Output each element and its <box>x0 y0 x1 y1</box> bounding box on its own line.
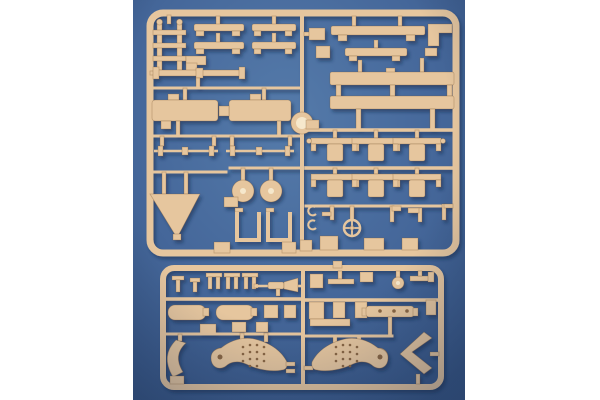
screenshot-stage <box>0 0 600 400</box>
photo-print <box>0 0 600 400</box>
photo-vignette <box>133 0 465 400</box>
